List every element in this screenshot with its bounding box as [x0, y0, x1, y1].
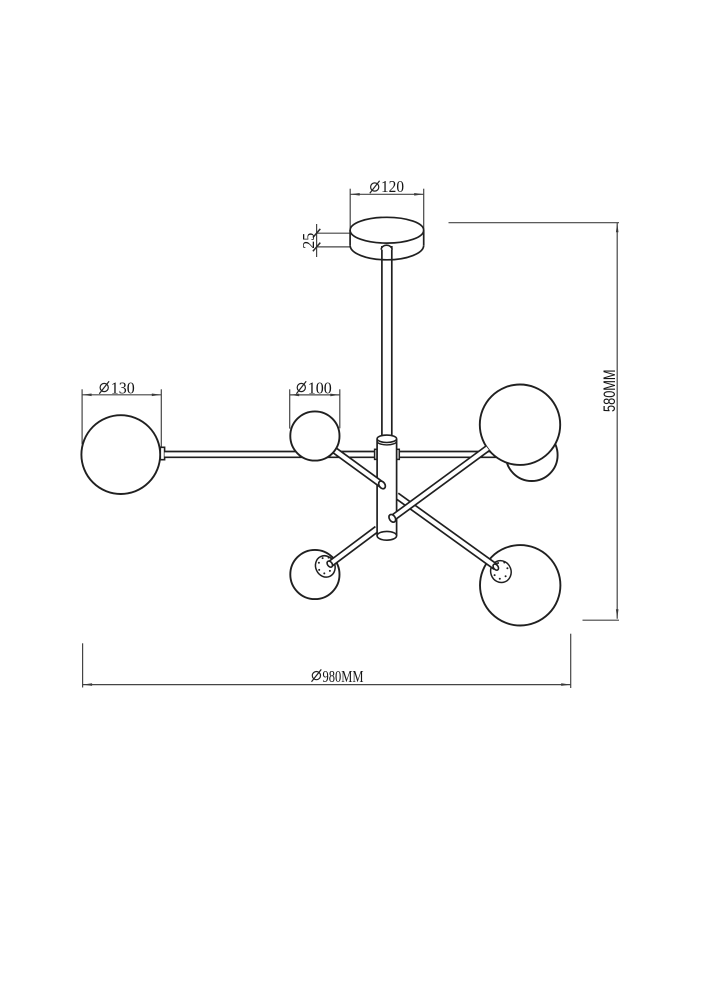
svg-text:25: 25: [299, 233, 318, 249]
svg-text:120: 120: [381, 177, 404, 196]
svg-text:130: 130: [111, 378, 135, 397]
svg-text:980MM: 980MM: [323, 667, 364, 686]
svg-text:100: 100: [308, 378, 332, 397]
svg-text:580MM: 580MM: [601, 369, 619, 412]
